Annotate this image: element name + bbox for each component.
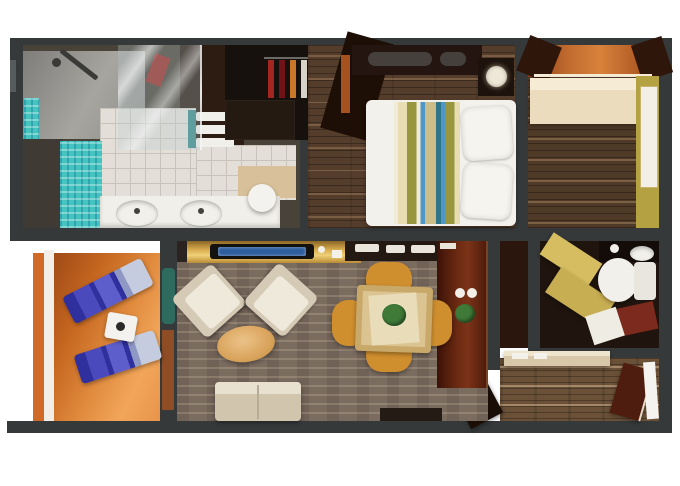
living-corner-shadow [177,241,187,262]
headboard-bolster [440,52,466,66]
hanging-clothes [301,60,307,98]
sink-drain-icon [198,208,204,214]
hanging-clothes [279,60,285,98]
console-ornament [318,246,325,253]
serving-tray [411,245,435,253]
wall-corridor-left [488,241,500,370]
paper [332,250,342,258]
potted-plant [455,304,475,323]
guest-sink [630,246,654,261]
headboard-bolster [368,52,432,66]
low-cabinet [380,408,442,421]
cup [467,288,477,298]
paper [440,243,456,249]
bath-side-ledge [23,139,63,228]
kettle [116,322,125,331]
balcony-railing [44,250,54,421]
serving-tray [355,244,379,252]
sofa-seam [257,385,259,419]
paper [534,353,547,359]
bedroom-curtain [341,55,350,113]
wall-bottom [7,421,672,433]
wall-guest-bath-left [528,241,540,358]
glass-partition [118,45,202,150]
cup [455,288,465,298]
serving-tray [386,245,405,253]
dining-table [355,285,433,354]
paper [512,353,528,359]
balcony-rail-orange [33,253,44,421]
hanging-clothes [290,60,296,98]
sink-drain-icon [134,208,140,214]
floor-plan-canvas [0,0,680,486]
mirror [640,86,658,188]
toilet-bowl [598,258,638,302]
balcony-door-curtain [162,330,174,410]
toilet-tank [634,262,656,300]
foyer-credenza-top [530,78,638,90]
tv-screen [218,247,306,256]
pillow [460,104,514,161]
closet-drawers [225,100,295,140]
wall-right [659,38,672,433]
hanging-clothes [268,60,274,98]
table-lamp [486,66,507,87]
bath-stool [248,184,276,212]
built-in-cabinet [500,241,528,348]
striped-duvet [394,102,460,224]
wall-notch [10,60,16,92]
ceiling-light-strip [534,74,652,77]
cup [610,244,619,253]
pillow [460,161,514,220]
shower-head-icon [52,58,61,67]
aqua-mosaic-sliver [24,98,39,142]
aqua-mosaic-panel [60,141,102,228]
